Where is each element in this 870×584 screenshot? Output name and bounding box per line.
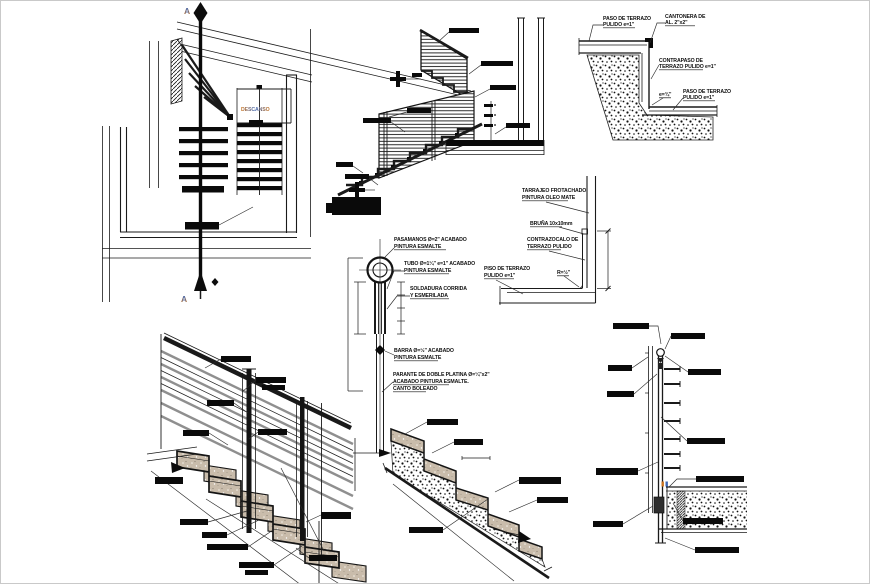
railing-elevation-detail (593, 323, 747, 553)
svg-text:BARRA Ø=½" ACABADO: BARRA Ø=½" ACABADO (394, 347, 454, 354)
label-soldadura: SOLDADURA CORRIDA Y ESMERILADA (387, 286, 467, 309)
right-flight-treads (237, 85, 282, 195)
label-contrapaso: CONTRAPASO DE TERRAZO PULIDO e=1" (651, 58, 717, 79)
svg-text:PISO DE TERRAZO: PISO DE TERRAZO (484, 266, 530, 272)
svg-text:TERRAZO PULIDO e=1": TERRAZO PULIDO e=1" (659, 64, 717, 70)
svg-text:PASAMANOS Ø=2" ACABADO: PASAMANOS Ø=2" ACABADO (394, 237, 467, 243)
stringer-foot (332, 197, 381, 215)
svg-text:TERRAZO PULIDO: TERRAZO PULIDO (527, 244, 572, 250)
soffit-line (385, 468, 549, 578)
landing-label: DESCANSO (241, 107, 270, 113)
aluminium-nosing (645, 38, 653, 48)
stair-details-drawing: DESCANSO A A (1, 1, 870, 584)
label-tubo: TUBO Ø=1¼" e=1" ACABADO PINTURA ESMALTE (387, 260, 475, 289)
section-arrow-bottom (194, 271, 207, 291)
svg-text:SOLDADURA CORRIDA: SOLDADURA CORRIDA (410, 286, 467, 292)
railing-rails (161, 333, 353, 509)
svg-text:R=½": R=½" (557, 269, 571, 276)
label-bruna: BRUÑA 10x10mm (530, 220, 584, 234)
baluster-rungs (664, 366, 680, 471)
stair-section-detail (326, 18, 545, 215)
svg-text:PULIDO e=1": PULIDO e=1" (683, 95, 715, 101)
svg-text:PINTURA ESMALTE: PINTURA ESMALTE (394, 244, 442, 250)
svg-text:PARANTE DE DOBLE PLATINA Ø=¼"x: PARANTE DE DOBLE PLATINA Ø=¼"x2" (393, 371, 490, 378)
floor-lines (499, 284, 596, 305)
newel-post (227, 114, 233, 120)
svg-text:PINTURA ESMALTE: PINTURA ESMALTE (394, 355, 442, 361)
left-arrow (353, 449, 391, 457)
svg-text:BRUÑA 10x10mm: BRUÑA 10x10mm (530, 220, 573, 227)
label-radio: R=½" (557, 269, 579, 287)
winder-treads-fan (177, 39, 233, 120)
height-dimension (597, 229, 611, 292)
section-arrow-top (194, 2, 208, 24)
svg-text:PINTURA ESMALTE: PINTURA ESMALTE (404, 268, 452, 274)
dim-diamond (212, 278, 219, 286)
section-marker-bottom: A (181, 294, 187, 304)
section-marker-top: A (184, 6, 190, 16)
svg-text:TUBO Ø=1¼" e=1" ACABADO: TUBO Ø=1¼" e=1" ACABADO (404, 260, 475, 267)
label-espesor: e=¾" (652, 91, 672, 105)
label-barra: BARRA Ø=½" ACABADO PINTURA ESMALTE (385, 347, 454, 361)
mini-dimension-column (484, 101, 496, 141)
wall-lines (582, 176, 596, 303)
svg-text:e=¾": e=¾" (659, 91, 672, 98)
svg-text:Y ESMERILADA: Y ESMERILADA (410, 293, 448, 299)
svg-text:TARRAJEO FROTACHADO: TARRAJEO FROTACHADO (522, 188, 586, 194)
step-edge-detail: PASO DE TERRAZO PULIDO e=1" CANTONERA DE… (579, 14, 731, 140)
label-piso: PISO DE TERRAZO PULIDO e=1" (484, 266, 530, 294)
wall-floor-junction-detail: TARRAJEO FROTACHADO PINTURA OLEO MATE BR… (484, 176, 611, 305)
hatched-wall (171, 38, 182, 104)
label-cantonera: CANTONERA DE AL. 2"x2" (650, 14, 706, 43)
handrail-post-detail: PASAMANOS Ø=2" ACABADO PINTURA ESMALTE T… (348, 237, 490, 453)
cad-sheet: DESCANSO A A (0, 0, 870, 584)
stair-railing-iso-detail (147, 333, 366, 584)
svg-text:AL. 2"x2": AL. 2"x2" (665, 20, 688, 26)
svg-text:CONTRAZOCALO DE: CONTRAZOCALO DE (527, 237, 579, 243)
label-contrazocalo: CONTRAZOCALO DE TERRAZO PULIDO (527, 237, 585, 260)
floor-slab (659, 482, 747, 533)
label-parante: PARANTE DE DOBLE PLATINA Ø=¼"x2" ACABADO… (382, 371, 490, 392)
svg-text:ACABADO PINTURA ESMALTE.: ACABADO PINTURA ESMALTE. (393, 379, 469, 385)
post-anchor (654, 497, 664, 513)
label-pasamanos: PASAMANOS Ø=2" ACABADO PINTURA ESMALTE (384, 237, 467, 258)
color-mark-blue (666, 482, 668, 487)
svg-text:PULIDO e=1": PULIDO e=1" (484, 273, 516, 279)
svg-text:PULIDO e=1": PULIDO e=1" (603, 22, 635, 28)
handrail-knob (657, 349, 665, 369)
color-mark-orange (662, 482, 664, 487)
label-tarrajeo: TARRAJEO FROTACHADO PINTURA OLEO MATE (522, 188, 589, 213)
label-paso-superior: PASO DE TERRAZO PULIDO e=1" (589, 16, 651, 41)
stair-flight-section-detail (353, 419, 568, 581)
svg-text:CANTO BOLEADO: CANTO BOLEADO (393, 386, 437, 392)
svg-text:PINTURA OLEO MATE: PINTURA OLEO MATE (522, 195, 576, 201)
